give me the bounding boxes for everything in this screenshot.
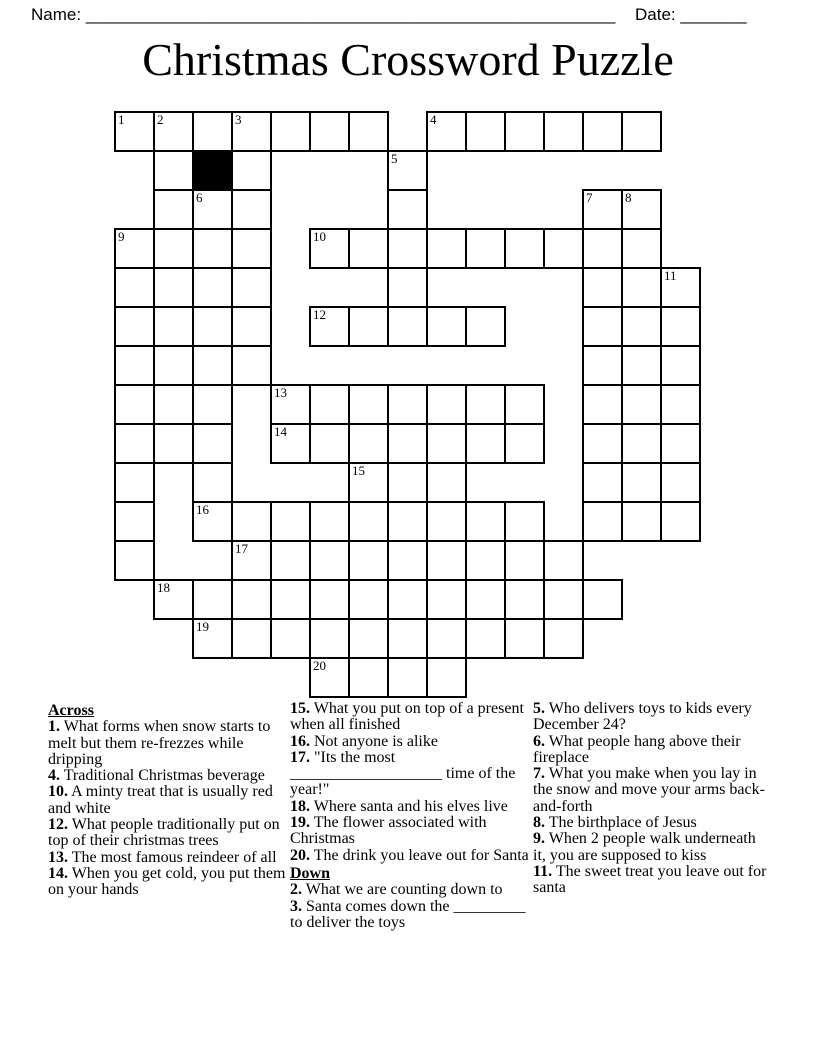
grid-cell[interactable]	[582, 462, 623, 503]
cell-number: 7	[586, 191, 593, 205]
grid-cell[interactable]	[621, 423, 662, 464]
grid-cell[interactable]	[582, 423, 623, 464]
grid-cell[interactable]	[270, 111, 311, 152]
grid-cell[interactable]	[387, 423, 428, 464]
grid-cell[interactable]	[504, 579, 545, 620]
grid-cell[interactable]	[504, 228, 545, 269]
grid-cell[interactable]	[582, 228, 623, 269]
grid-cell[interactable]: 7	[582, 189, 623, 230]
grid-cell[interactable]	[465, 501, 506, 542]
grid-cell[interactable]	[387, 540, 428, 581]
grid-cell[interactable]	[621, 462, 662, 503]
grid-cell[interactable]	[426, 579, 467, 620]
grid-cell[interactable]	[348, 540, 389, 581]
grid-cell[interactable]	[192, 306, 233, 347]
grid-cell[interactable]	[582, 267, 623, 308]
clue-column-middle: 15. What you put on top of a present whe…	[290, 701, 529, 931]
clue-column-across: Across1. What forms when snow starts to …	[48, 701, 287, 899]
grid-cell[interactable]: 20	[309, 657, 350, 698]
grid-cell[interactable]	[660, 462, 701, 503]
grid-cell[interactable]	[426, 306, 467, 347]
grid-cell[interactable]	[309, 384, 350, 425]
cell-number: 19	[196, 620, 209, 634]
clue-column-down: 5. Who delivers toys to kids every Decem…	[533, 701, 772, 897]
clue-12: 12. What people traditionally put on top…	[48, 817, 287, 850]
clue-5: 5. Who delivers toys to kids every Decem…	[533, 701, 772, 734]
page-title: Christmas Crossword Puzzle	[0, 34, 816, 86]
grid-cell[interactable]	[504, 501, 545, 542]
grid-cell[interactable]: 18	[153, 579, 194, 620]
grid-cell[interactable]	[504, 618, 545, 659]
grid-cell[interactable]	[426, 618, 467, 659]
grid-cell[interactable]	[231, 228, 272, 269]
grid-cell[interactable]	[465, 384, 506, 425]
grid-cell[interactable]	[426, 423, 467, 464]
grid-cell[interactable]	[309, 579, 350, 620]
cell-number: 11	[664, 269, 677, 283]
cell-number: 16	[196, 503, 209, 517]
grid-cell[interactable]	[192, 111, 233, 152]
grid-cell[interactable]	[621, 384, 662, 425]
grid-cell[interactable]	[192, 579, 233, 620]
grid-cell[interactable]	[426, 540, 467, 581]
grid-cell[interactable]	[192, 228, 233, 269]
clue-4: 4. Traditional Christmas beverage	[48, 768, 287, 784]
grid-cell[interactable]	[192, 345, 233, 386]
clue-19: 19. The flower associated with Christmas	[290, 815, 529, 848]
cell-number: 18	[157, 581, 170, 595]
grid-cell[interactable]	[426, 657, 467, 698]
grid-cell[interactable]	[153, 306, 194, 347]
grid-cell[interactable]: 11	[660, 267, 701, 308]
grid-cell[interactable]: 9	[114, 228, 155, 269]
grid-cell[interactable]	[543, 579, 584, 620]
grid-cell[interactable]	[231, 501, 272, 542]
grid-cell[interactable]	[582, 501, 623, 542]
grid-cell[interactable]	[114, 306, 155, 347]
grid-cell-black	[192, 150, 233, 191]
grid-cell[interactable]	[153, 228, 194, 269]
cell-number: 14	[274, 425, 287, 439]
date-label: Date:	[635, 5, 676, 24]
grid-cell[interactable]	[153, 423, 194, 464]
date-blank-line[interactable]: _______	[680, 5, 746, 24]
grid-cell[interactable]	[153, 267, 194, 308]
grid-cell[interactable]	[621, 111, 662, 152]
grid-cell[interactable]	[231, 306, 272, 347]
grid-cell[interactable]	[192, 267, 233, 308]
grid-cell[interactable]	[504, 111, 545, 152]
grid-cell[interactable]	[543, 228, 584, 269]
clue-6: 6. What people hang above their fireplac…	[533, 734, 772, 767]
grid-cell[interactable]	[153, 189, 194, 230]
grid-cell[interactable]	[231, 150, 272, 191]
grid-cell[interactable]: 2	[153, 111, 194, 152]
grid-cell[interactable]	[387, 228, 428, 269]
grid-cell[interactable]	[348, 501, 389, 542]
grid-cell[interactable]	[114, 501, 155, 542]
grid-cell[interactable]	[426, 228, 467, 269]
clue-20: 20. The drink you leave out for Santa	[290, 848, 529, 864]
grid-cell[interactable]	[387, 384, 428, 425]
grid-cell[interactable]	[504, 423, 545, 464]
grid-cell[interactable]: 3	[231, 111, 272, 152]
across-header: Across	[48, 703, 287, 719]
grid-cell[interactable]	[582, 579, 623, 620]
grid-cell[interactable]	[465, 111, 506, 152]
grid-cell[interactable]: 4	[426, 111, 467, 152]
cell-number: 15	[352, 464, 365, 478]
grid-cell[interactable]: 6	[192, 189, 233, 230]
grid-cell[interactable]	[348, 111, 389, 152]
grid-cell[interactable]	[543, 111, 584, 152]
cell-number: 2	[157, 113, 164, 127]
grid-cell[interactable]: 16	[192, 501, 233, 542]
cell-number: 13	[274, 386, 287, 400]
grid-cell[interactable]	[621, 501, 662, 542]
grid-cell[interactable]: 15	[348, 462, 389, 503]
grid-cell[interactable]	[621, 306, 662, 347]
grid-cell[interactable]	[660, 345, 701, 386]
grid-cell[interactable]	[348, 618, 389, 659]
cell-number: 1	[118, 113, 125, 127]
grid-cell[interactable]	[309, 540, 350, 581]
grid-cell[interactable]	[192, 423, 233, 464]
cell-number: 4	[430, 113, 437, 127]
clue-17: 17. "Its the most ___________________ ti…	[290, 750, 529, 799]
grid-cell[interactable]	[114, 423, 155, 464]
clue-16: 16. Not anyone is alike	[290, 734, 529, 750]
grid-cell[interactable]	[582, 345, 623, 386]
grid-cell[interactable]	[348, 423, 389, 464]
grid-cell[interactable]	[582, 384, 623, 425]
grid-cell[interactable]	[153, 150, 194, 191]
grid-cell[interactable]	[465, 579, 506, 620]
grid-cell[interactable]	[387, 267, 428, 308]
cell-number: 3	[235, 113, 242, 127]
grid-cell[interactable]	[231, 345, 272, 386]
cell-number: 17	[235, 542, 248, 556]
grid-cell[interactable]	[114, 345, 155, 386]
grid-cell[interactable]	[387, 657, 428, 698]
grid-cell[interactable]	[504, 384, 545, 425]
grid-cell[interactable]	[465, 618, 506, 659]
grid-cell[interactable]	[348, 228, 389, 269]
grid-cell[interactable]	[270, 618, 311, 659]
grid-cell[interactable]	[309, 111, 350, 152]
clue-14: 14. When you get cold, you put them on y…	[48, 866, 287, 899]
grid-cell[interactable]	[270, 579, 311, 620]
grid-cell[interactable]	[621, 345, 662, 386]
grid-cell[interactable]	[660, 384, 701, 425]
clue-7: 7. What you make when you lay in the sno…	[533, 766, 772, 815]
grid-cell[interactable]	[543, 540, 584, 581]
grid-cell[interactable]: 5	[387, 150, 428, 191]
grid-cell[interactable]: 12	[309, 306, 350, 347]
clue-8: 8. The birthplace of Jesus	[533, 815, 772, 831]
grid-cell[interactable]	[387, 306, 428, 347]
grid-cell[interactable]: 17	[231, 540, 272, 581]
clue-3: 3. Santa comes down the _________ to del…	[290, 899, 529, 932]
grid-cell[interactable]	[582, 111, 623, 152]
name-label: Name:	[31, 5, 81, 24]
grid-cell[interactable]	[660, 501, 701, 542]
grid-cell[interactable]	[426, 384, 467, 425]
grid-cell[interactable]	[387, 618, 428, 659]
clue-10: 10. A minty treat that is usually red an…	[48, 784, 287, 817]
grid-cell[interactable]	[582, 306, 623, 347]
clue-1: 1. What forms when snow starts to melt b…	[48, 719, 287, 768]
grid-cell[interactable]: 14	[270, 423, 311, 464]
grid-cell[interactable]	[348, 384, 389, 425]
clue-2: 2. What we are counting down to	[290, 882, 529, 898]
grid-cell[interactable]: 19	[192, 618, 233, 659]
grid-cell[interactable]	[465, 540, 506, 581]
down-header: Down	[290, 866, 529, 882]
header-row: Name: __________________________________…	[0, 5, 816, 29]
clue-13: 13. The most famous reindeer of all	[48, 850, 287, 866]
grid-cell[interactable]	[114, 267, 155, 308]
grid-cell[interactable]	[426, 501, 467, 542]
grid-cell[interactable]	[231, 618, 272, 659]
grid-cell[interactable]	[426, 462, 467, 503]
grid-cell[interactable]	[309, 423, 350, 464]
grid-cell[interactable]	[504, 540, 545, 581]
cell-number: 12	[313, 308, 326, 322]
grid-cell[interactable]	[387, 462, 428, 503]
date-field: Date: _______	[635, 5, 747, 25]
cell-number: 6	[196, 191, 203, 205]
grid-cell[interactable]	[114, 384, 155, 425]
grid-cell[interactable]	[270, 501, 311, 542]
grid-cell[interactable]: 8	[621, 189, 662, 230]
grid-cell[interactable]	[387, 189, 428, 230]
grid-cell[interactable]	[348, 579, 389, 620]
cell-number: 9	[118, 230, 125, 244]
grid-cell[interactable]	[231, 267, 272, 308]
grid-cell[interactable]	[309, 501, 350, 542]
grid-cell[interactable]	[192, 462, 233, 503]
cell-number: 5	[391, 152, 398, 166]
clue-18: 18. Where santa and his elves live	[290, 799, 529, 815]
cell-number: 10	[313, 230, 326, 244]
grid-cell[interactable]	[270, 540, 311, 581]
grid-cell[interactable]	[465, 228, 506, 269]
grid-cell[interactable]	[387, 579, 428, 620]
grid-cell[interactable]	[465, 306, 506, 347]
grid-cell[interactable]: 13	[270, 384, 311, 425]
grid-cell[interactable]	[660, 423, 701, 464]
clue-11: 11. The sweet treat you leave out for sa…	[533, 864, 772, 897]
clue-9: 9. When 2 people walk underneath it, you…	[533, 831, 772, 864]
name-blank-line[interactable]: ________________________________________…	[86, 5, 615, 24]
grid-cell[interactable]	[348, 657, 389, 698]
name-field: Name: __________________________________…	[31, 5, 615, 25]
grid-cell[interactable]	[465, 423, 506, 464]
grid-cell[interactable]	[231, 189, 272, 230]
grid-cell[interactable]	[309, 618, 350, 659]
grid-cell[interactable]: 1	[114, 111, 155, 152]
worksheet-page: { "page": { "name_label": "Name:", "name…	[0, 0, 816, 1056]
grid-cell[interactable]	[231, 579, 272, 620]
grid-cell[interactable]	[621, 267, 662, 308]
grid-cell[interactable]	[153, 384, 194, 425]
grid-cell[interactable]	[387, 501, 428, 542]
grid-cell[interactable]	[153, 345, 194, 386]
grid-cell[interactable]	[621, 228, 662, 269]
cell-number: 20	[313, 659, 326, 673]
grid-cell[interactable]	[348, 306, 389, 347]
grid-cell[interactable]	[660, 306, 701, 347]
grid-cell[interactable]	[114, 462, 155, 503]
grid-cell[interactable]: 10	[309, 228, 350, 269]
clue-15: 15. What you put on top of a present whe…	[290, 701, 529, 734]
grid-cell[interactable]	[543, 618, 584, 659]
grid-cell[interactable]	[192, 384, 233, 425]
grid-cell[interactable]	[114, 540, 155, 581]
cell-number: 8	[625, 191, 632, 205]
